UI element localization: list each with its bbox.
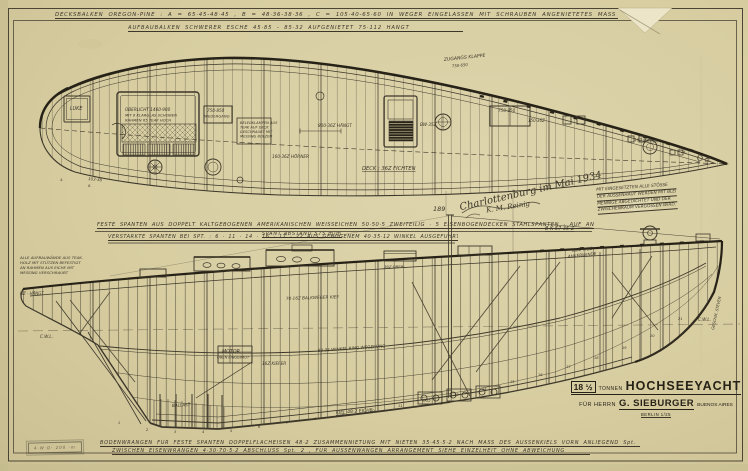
annotation-label: 103·38: [88, 176, 103, 182]
bottom-note-line2: ZWISCHEN EISENWRANGEN 4·30·70·5·2 ABSCHL…: [112, 448, 590, 455]
side-note: MIT EINGESETZTEN ALLE STÖSSE DER AUSSENH…: [596, 182, 678, 215]
annotation-label: 150·36Z: [528, 118, 545, 123]
annotation-label: 800·36Z HÄNGT: [318, 123, 352, 128]
tonnage-unit: TONNEN: [599, 386, 623, 392]
annotation-label: 16Z KIEFER: [262, 361, 286, 366]
annotation-label: MESSING VERSCHRAUBT: [20, 270, 69, 275]
annotation-label: C.W.L.: [40, 334, 53, 339]
annotation-label: BELEGKLAMPEN AUS: [240, 121, 278, 125]
annotation-label: MESSING BOLZEN: [240, 135, 273, 139]
annotation-label: BALLAST: [172, 402, 191, 408]
corner-stamp: 4·W·D· 200 ·m: [28, 441, 82, 453]
annotation-label: 4.: [60, 178, 63, 182]
mid-note-line1: FESTE SPANTEN AUS DOPPELT KALTGEBOGENEN …: [97, 222, 594, 229]
frame-number: 21: [678, 317, 683, 321]
frame-number: 12: [426, 399, 431, 403]
top-note-line1: DECKSBALKEN OREGON-PINE : A = 65·45-48·4…: [55, 12, 618, 19]
annotation-label: 36Z OBERL.: [384, 264, 407, 269]
frame-number: 11: [398, 404, 403, 408]
annotation-label: OBERLICHT 1460·900: [125, 107, 171, 112]
frame-number: 17: [566, 365, 571, 369]
tonnage-badge: 18 ½: [571, 381, 596, 393]
frame-number: 14: [482, 387, 487, 391]
annotation-label: GESCHM. STEVEN: [710, 296, 722, 330]
paper-patch: [618, 8, 672, 34]
annotation-label: 750·850: [207, 108, 225, 113]
annotation-label: 750·650: [452, 62, 469, 69]
annotation-label: MOTOR: [222, 349, 240, 355]
frame-number: 19: [622, 346, 627, 350]
frame-number: 13: [454, 393, 459, 397]
frame-number: 15: [510, 380, 515, 384]
annotation-label: 25.: [706, 156, 712, 160]
annotation-label: RAHMEN 65 TEAK HOCH: [125, 118, 171, 123]
owner-row: FÜR HERRN G. SIEBURGER BUENOS AIRES: [579, 398, 733, 410]
annotation-label: 24.: [681, 150, 687, 154]
top-note-line2: AUFBAUBALKEN SCHWERER ESCHE 45·85 - 85·3…: [128, 25, 463, 32]
title-block: 18 ½ TONNEN HOCHSEEYACHT FÜR HERRN G. SI…: [570, 379, 742, 418]
frame-number: 16: [538, 373, 543, 377]
deck-plan-view: [35, 50, 735, 205]
owner-city: BUENOS AIRES: [697, 403, 733, 408]
frame-number: 20: [650, 334, 655, 338]
frame-number: 3: [174, 430, 177, 434]
title-row: 18 ½ TONNEN HOCHSEEYACHT: [571, 379, 742, 395]
bottom-note-line1: BODENWRANGEN FÜR FESTE SPANTEN DOPPELFLA…: [100, 440, 640, 447]
owner-name: G. SIEBURGER: [619, 398, 694, 410]
frame-number: 18: [594, 356, 599, 360]
mid-note-line2: VERSTÄRKTE SPANTEN BEI SPT. : 6 · 11 · 1…: [108, 234, 458, 241]
frame-number: 1: [118, 421, 120, 425]
annotation-label: 750·850: [498, 108, 516, 113]
annotation-label: 189: [433, 205, 445, 213]
title-sub: BERLIN 1/25: [641, 412, 671, 418]
annotation-label: OBEN EINGEBAUT: [217, 356, 250, 360]
owner-prefix: FÜR HERRN: [579, 402, 616, 408]
annotation-label: 160·36Z HÖRNER: [272, 154, 309, 159]
frame-number: 4: [202, 430, 205, 434]
annotation-label: NIEDERGANG: [204, 114, 230, 119]
annotation-label: HZ · HÄNGT: [20, 291, 44, 296]
frame-number: 10: [370, 409, 375, 413]
frame-number: 2: [146, 428, 149, 432]
annotation-label: 8.: [88, 184, 91, 188]
blueprint-page: LUKEOBERLICHT 1460·900MIT 8 KLARGLAS SCH…: [0, 0, 748, 471]
annotation-label: C.W.L.: [698, 317, 711, 322]
annotation-label: DECK : 36Z FICHTEN: [362, 166, 416, 172]
annotation-label: GESCHRAUBT MIT: [240, 130, 273, 134]
annotation-label: BW·35Z: [420, 122, 437, 127]
annotation-label: LUKE: [70, 106, 83, 112]
frame-number: 5: [230, 429, 233, 433]
drawing-title: HOCHSEEYACHT: [626, 379, 742, 393]
annotation-label: TEAK AUF DECK: [240, 126, 269, 130]
